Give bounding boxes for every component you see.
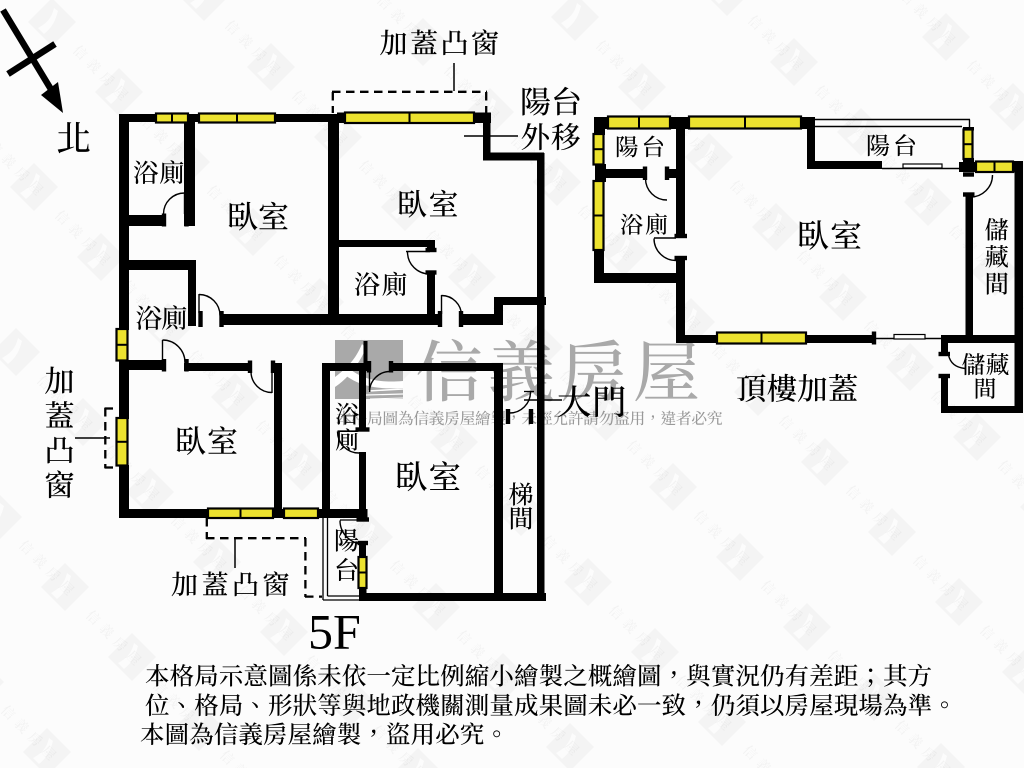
svg-text:5F: 5F bbox=[308, 604, 361, 660]
